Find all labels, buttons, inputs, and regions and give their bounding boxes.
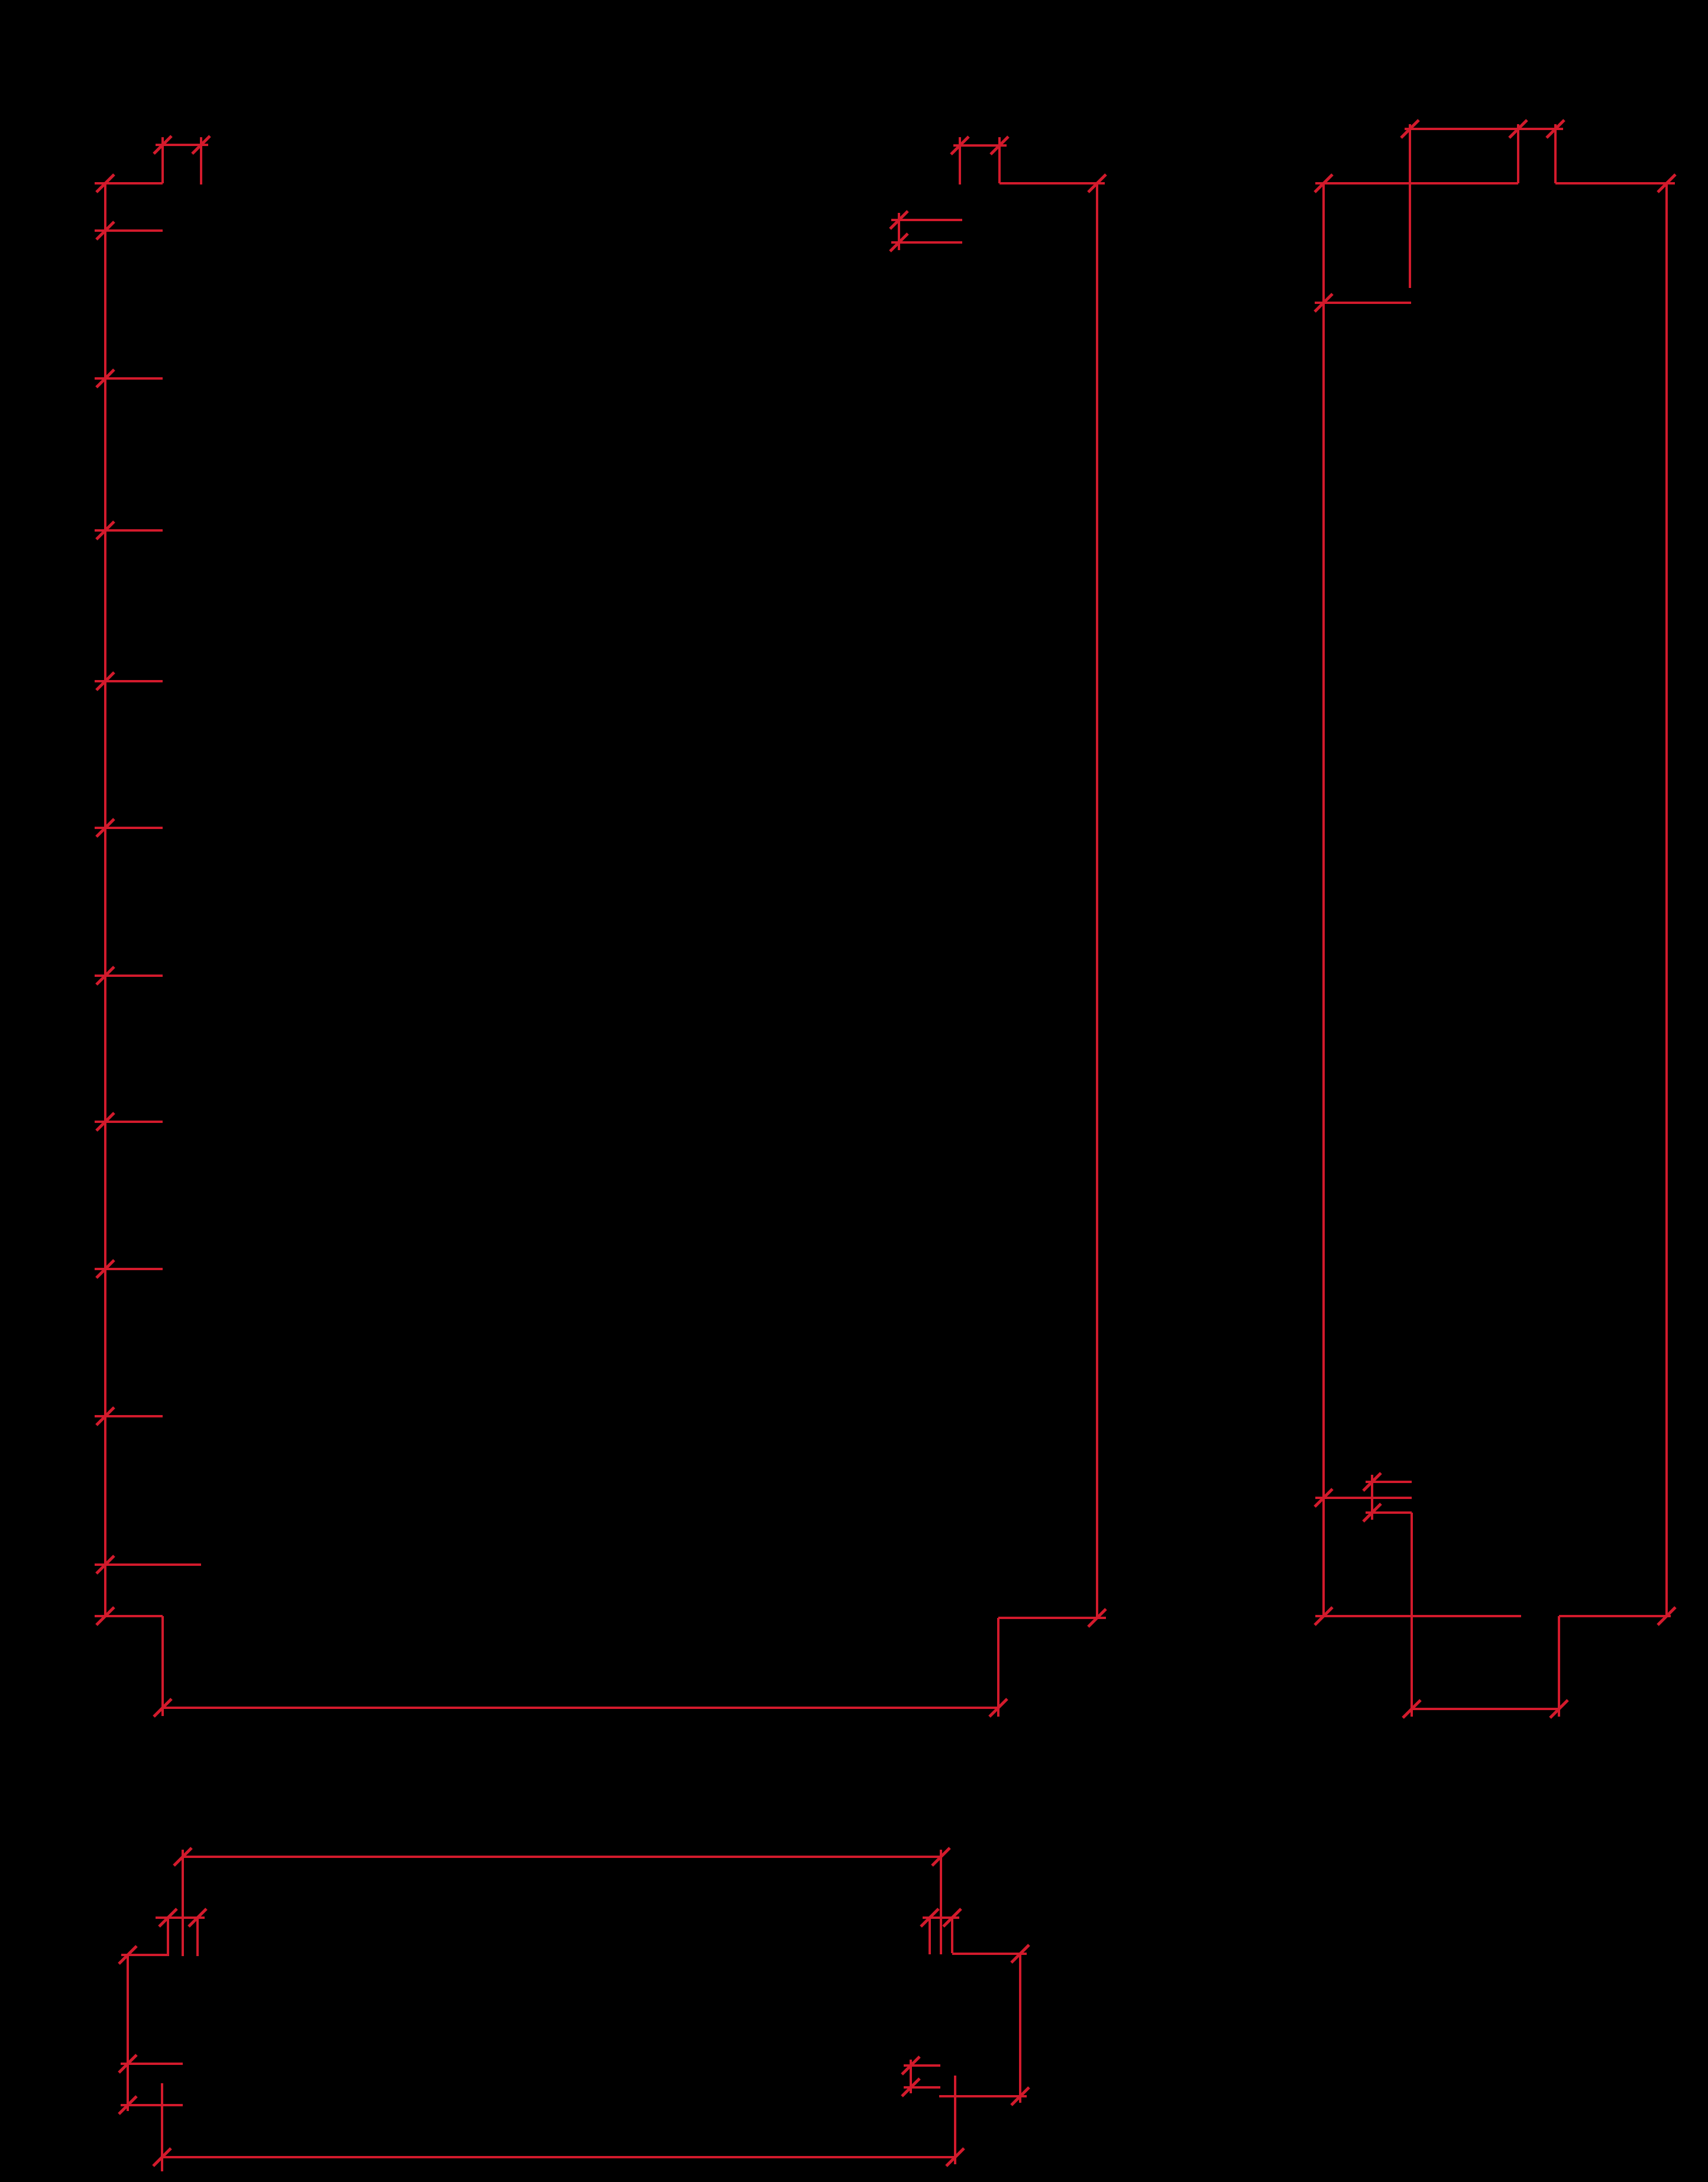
bottom-view [119, 1848, 1029, 2171]
drawing-canvas [0, 0, 1708, 2182]
side-view [1315, 120, 1675, 1718]
front-view [95, 136, 1106, 1717]
technical-drawing-svg [0, 0, 1708, 2182]
